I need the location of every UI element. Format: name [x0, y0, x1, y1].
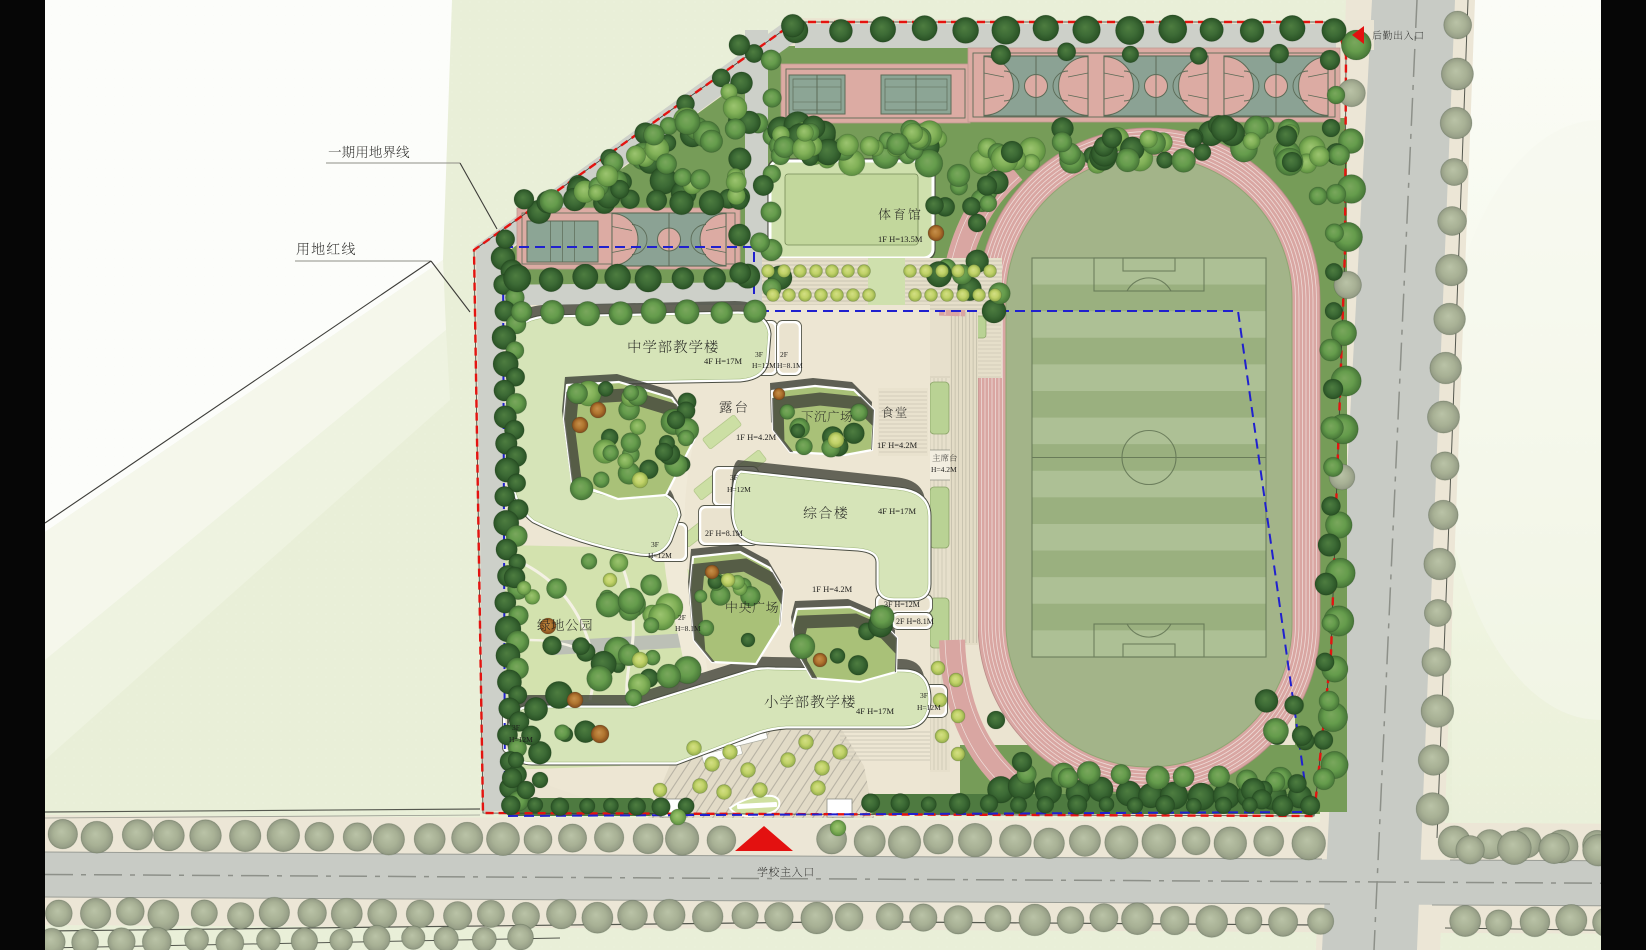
svg-text:H=4.2M: H=4.2M: [931, 465, 957, 474]
svg-text:3F H=12M: 3F H=12M: [884, 600, 920, 609]
svg-text:3F: 3F: [920, 691, 928, 700]
svg-text:H=12M: H=12M: [917, 703, 941, 712]
svg-text:1F H=4.2M: 1F H=4.2M: [812, 584, 853, 594]
svg-text:1F H=13.5M: 1F H=13.5M: [878, 234, 923, 244]
svg-text:H=8.1M: H=8.1M: [777, 361, 803, 370]
svg-text:3F: 3F: [730, 473, 738, 482]
svg-text:H=12M: H=12M: [509, 735, 533, 744]
svg-text:2F H=8.1M: 2F H=8.1M: [896, 617, 934, 626]
svg-text:2F: 2F: [678, 613, 686, 622]
svg-text:2F: 2F: [780, 350, 788, 359]
svg-text:2F H=8.1M: 2F H=8.1M: [705, 529, 743, 538]
svg-text:H=8.1M: H=8.1M: [675, 624, 701, 633]
svg-text:H=12M: H=12M: [727, 485, 751, 494]
svg-text:1F H=4.2M: 1F H=4.2M: [877, 440, 918, 450]
svg-text:3F: 3F: [651, 540, 659, 549]
svg-text:3F: 3F: [512, 723, 520, 732]
svg-text:4F H=17M: 4F H=17M: [856, 706, 895, 716]
svg-text:4F H=17M: 4F H=17M: [878, 506, 917, 516]
svg-text:3F: 3F: [755, 350, 763, 359]
svg-text:4F H=17M: 4F H=17M: [704, 356, 743, 366]
svg-text:H=12M: H=12M: [752, 361, 776, 370]
svg-text:H=12M: H=12M: [648, 551, 672, 560]
svg-text:1F H=4.2M: 1F H=4.2M: [736, 432, 777, 442]
